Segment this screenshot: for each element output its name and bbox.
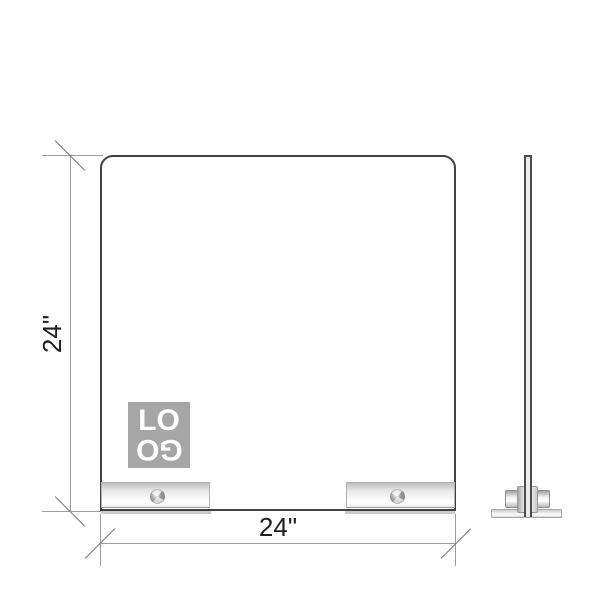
height-dimension-label: 24"	[38, 282, 66, 386]
height-extension-line-bottom	[42, 511, 103, 512]
side-view-panel-edge	[524, 155, 532, 517]
foot-screw-icon	[390, 489, 405, 504]
height-extension-line-top	[42, 155, 103, 156]
height-dimension-line	[70, 155, 71, 512]
logo-watermark: LO GO	[128, 402, 190, 468]
width-dimension-line	[100, 543, 456, 544]
width-dimension-label: 24"	[100, 513, 456, 541]
foot-screw-icon	[150, 489, 165, 504]
foot-base-edge-right	[345, 511, 455, 514]
foot-base-edge-left	[101, 511, 211, 514]
logo-line-1: LO	[138, 407, 180, 435]
side-view-knob-right	[537, 490, 550, 508]
logo-line-2: GO	[136, 435, 183, 463]
product-drawing-canvas: 24" 24" LO GO	[0, 0, 600, 600]
